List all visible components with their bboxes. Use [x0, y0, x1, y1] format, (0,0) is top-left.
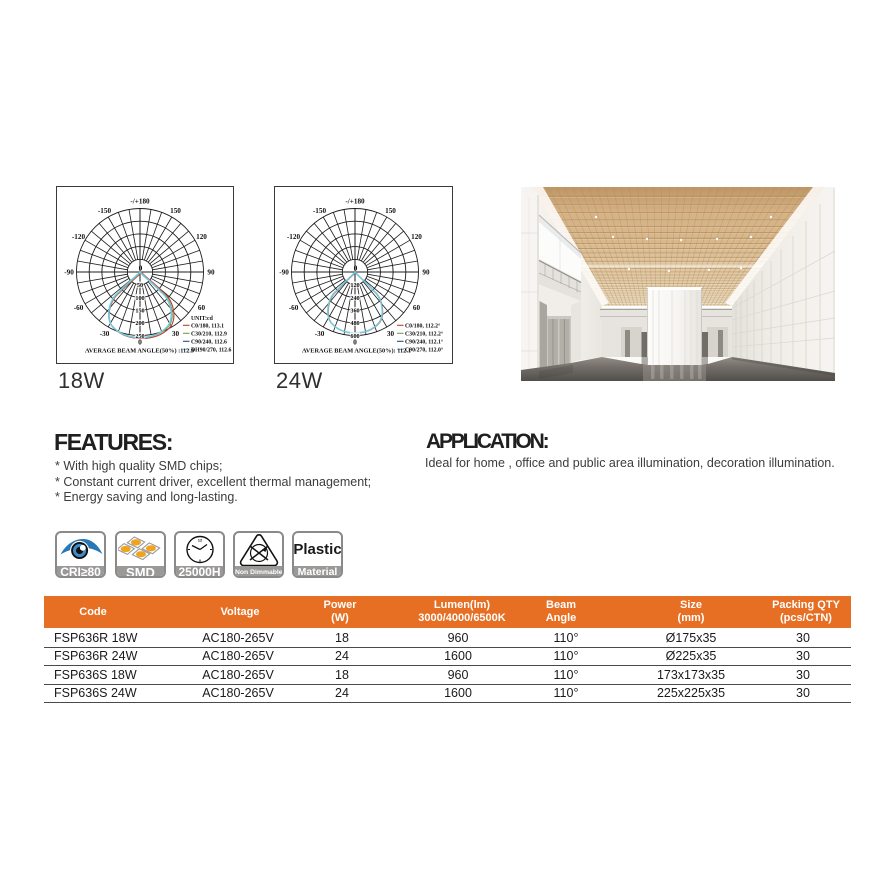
svg-text:240: 240 [350, 295, 359, 302]
svg-text:C30/210, 112.2°: C30/210, 112.2° [405, 331, 444, 338]
svg-text:120: 120 [196, 233, 207, 241]
svg-text:C0/180, 113.1: C0/180, 113.1 [191, 324, 224, 330]
svg-text:480: 480 [350, 320, 359, 327]
svg-text:C90/240, 112.1°: C90/240, 112.1° [405, 339, 444, 346]
svg-text:-/+180: -/+180 [345, 198, 365, 206]
svg-text:-120: -120 [72, 233, 86, 241]
svg-text:-90: -90 [279, 269, 289, 277]
svg-text:150: 150 [385, 207, 396, 215]
svg-text:AVERAGE BEAM ANGLE(50%): 112.1: AVERAGE BEAM ANGLE(50%): 112.1 [302, 348, 411, 355]
svg-text:-150: -150 [98, 207, 112, 215]
svg-text:C0/180, 112.2°: C0/180, 112.2° [405, 323, 441, 330]
svg-text:-30: -30 [100, 330, 110, 338]
svg-text:-60: -60 [74, 304, 84, 312]
svg-text:30: 30 [172, 330, 180, 338]
svg-text:150: 150 [135, 308, 144, 315]
svg-text:90: 90 [207, 269, 215, 277]
svg-text:C90/240, 112.6: C90/240, 112.6 [191, 340, 227, 346]
svg-text:C30/210, 112.9: C30/210, 112.9 [191, 332, 227, 338]
svg-text:250: 250 [135, 333, 144, 340]
svg-text:-60: -60 [289, 304, 299, 312]
svg-text:-30: -30 [315, 330, 325, 338]
svg-text:600: 600 [350, 333, 359, 340]
svg-text:60: 60 [198, 304, 206, 312]
svg-text:DH90/270, 112.6: DH90/270, 112.6 [191, 348, 232, 354]
svg-text:30: 30 [387, 330, 395, 338]
svg-text:-90: -90 [64, 269, 74, 277]
svg-text:150: 150 [170, 207, 181, 215]
svg-text:0: 0 [354, 264, 358, 273]
svg-text:200: 200 [135, 320, 144, 327]
svg-text:-/+180: -/+180 [130, 198, 150, 206]
svg-text:100: 100 [135, 295, 144, 302]
svg-text:AVERAGE BEAM ANGLE(50%) :112.9: AVERAGE BEAM ANGLE(50%) :112.9 [85, 348, 194, 355]
svg-text:50: 50 [137, 282, 143, 289]
svg-text:120: 120 [350, 282, 359, 289]
svg-text:120: 120 [411, 233, 422, 241]
svg-text:60: 60 [413, 304, 421, 312]
svg-text:-150: -150 [313, 207, 327, 215]
svg-text:UNIT:cd: UNIT:cd [191, 316, 214, 322]
svg-text:0: 0 [139, 264, 143, 273]
svg-text:90: 90 [422, 269, 430, 277]
svg-text:-120: -120 [287, 233, 301, 241]
svg-text:12: 12 [197, 538, 202, 543]
svg-text:360: 360 [350, 308, 359, 315]
